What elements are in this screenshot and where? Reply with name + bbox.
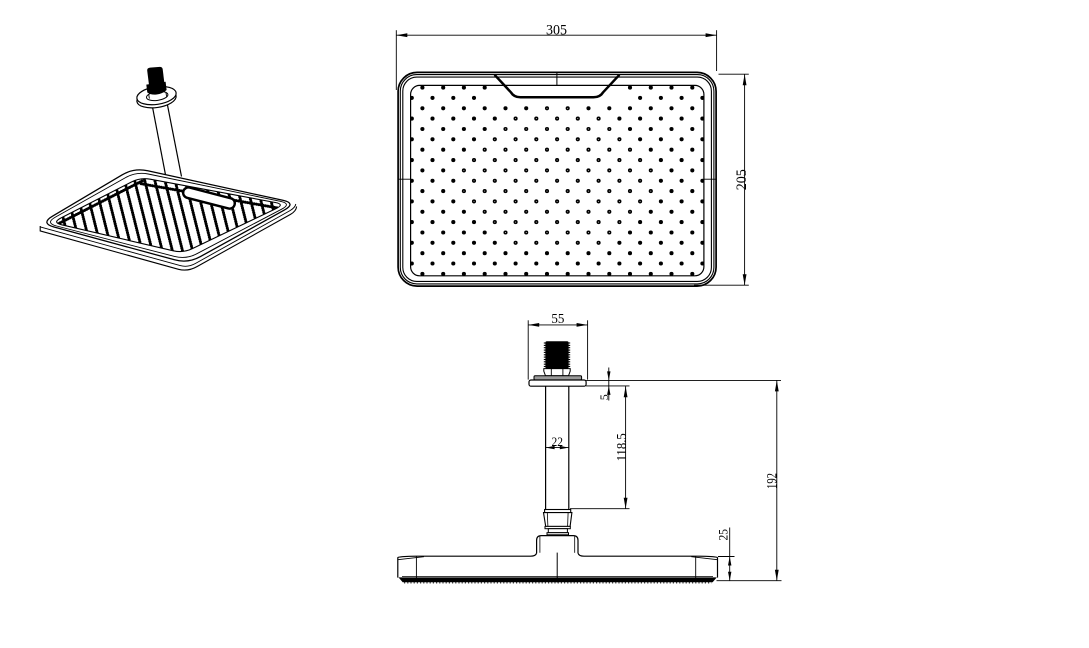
svg-text:305: 305 [546,22,567,38]
svg-text:25: 25 [716,529,731,541]
svg-text:55: 55 [551,312,564,327]
svg-text:118.5: 118.5 [615,433,630,461]
svg-text:5: 5 [597,394,611,400]
svg-text:205: 205 [734,169,750,190]
svg-text:22: 22 [551,434,563,449]
svg-text:192: 192 [765,473,781,489]
